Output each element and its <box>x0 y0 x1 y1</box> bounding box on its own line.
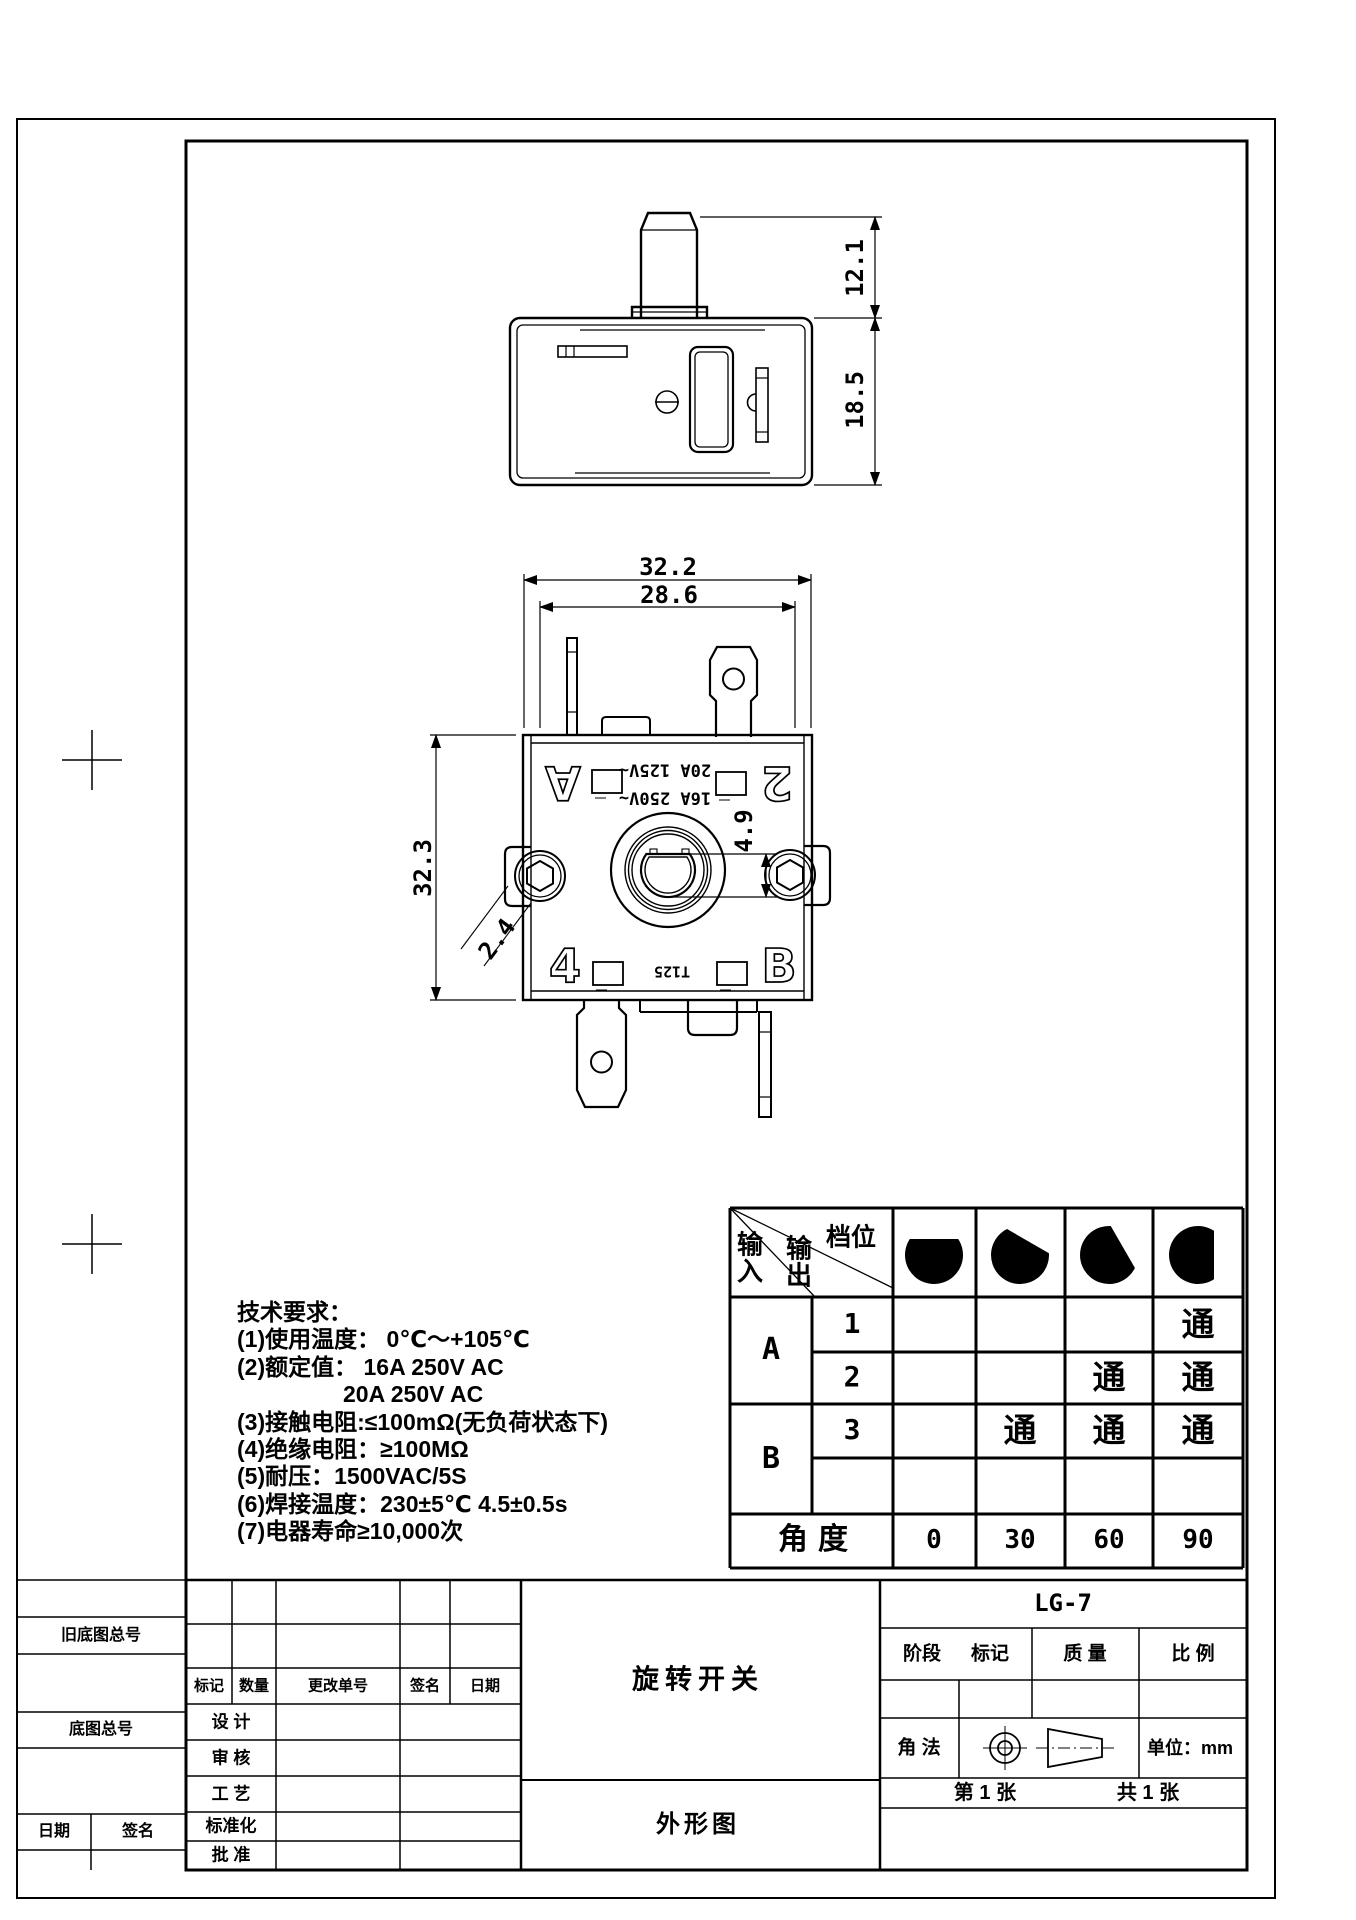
tech-line: (2)额定值： 16A 250V AC <box>237 1354 737 1381</box>
dim-shaft-height: 12.1 <box>843 239 867 297</box>
projection-label: 角 法 <box>897 1739 940 1758</box>
input-group-b: B <box>762 1444 780 1474</box>
tech-line: (1)使用温度： 0℃～+105℃ <box>237 1326 737 1353</box>
state-cell: 通 <box>1182 1414 1215 1447</box>
face-marking-2: 2 <box>761 756 793 810</box>
view-type-label: 外形图 <box>656 1813 740 1837</box>
bottom-pin-terminal <box>759 1012 771 1117</box>
mark-label: 标记 <box>971 1645 1009 1664</box>
dim-body-height: 18.5 <box>843 371 867 429</box>
role-check: 审 核 <box>212 1750 251 1767</box>
state-cell: 通 <box>1182 1308 1215 1341</box>
input-group-a: A <box>762 1335 780 1365</box>
tech-line: (6)焊接温度：230±5℃ 4.5±0.5s <box>237 1491 737 1518</box>
drawing-linework: A 2 4 B <box>0 0 1356 1920</box>
state-cell: 通 <box>1182 1361 1215 1394</box>
front-view <box>505 638 830 1117</box>
projection-symbol <box>983 1726 1114 1770</box>
rev-header-doc: 更改单号 <box>308 1679 368 1694</box>
face-marking-a: A <box>545 756 581 810</box>
state-cell: 通 <box>1093 1414 1126 1447</box>
rev-header-qty: 数量 <box>239 1679 269 1694</box>
face-marking-b: B <box>761 939 796 993</box>
rotary-shaft <box>641 213 697 318</box>
role-standardize: 标准化 <box>206 1818 257 1835</box>
table-corner-input: 输入 <box>735 1232 765 1287</box>
dim-dhole-depth: 4.9 <box>732 809 756 852</box>
role-process: 工 艺 <box>212 1786 251 1803</box>
gear-3: 3 <box>844 1416 861 1444</box>
right-mounting-ear <box>804 846 830 905</box>
top-boss <box>602 717 650 735</box>
angle-value-0: 0 <box>926 1527 942 1553</box>
knob-icon-90deg <box>1169 1226 1214 1284</box>
knob-icon-0deg <box>905 1239 963 1284</box>
angle-row-label: 角度 <box>778 1525 858 1555</box>
dim-face-height: 32.3 <box>411 839 435 897</box>
knob-icon-30deg <box>980 1227 1053 1295</box>
d-shaped-hole <box>641 854 695 897</box>
sheet-borders <box>17 119 1275 1898</box>
unit-label: 单位：mm <box>1147 1739 1233 1757</box>
bottom-spade-terminal <box>577 1000 626 1107</box>
rating-bottom-label: 16A 250V~ <box>619 789 711 806</box>
gear-1: 1 <box>844 1310 861 1338</box>
tech-line: (7)电器寿命≥10,000次 <box>237 1518 737 1545</box>
scale-label: 比 例 <box>1171 1645 1214 1664</box>
role-design: 设 计 <box>212 1714 251 1731</box>
rating-top-label: 20A 125V~ <box>619 761 711 778</box>
gear-2: 2 <box>844 1363 861 1391</box>
date-label-left: 日期 <box>38 1824 70 1840</box>
angle-value-60: 60 <box>1093 1527 1124 1553</box>
stage-label: 阶段 <box>903 1645 941 1664</box>
table-corner-output: 输出 <box>784 1236 814 1291</box>
state-cell: 通 <box>1004 1414 1037 1447</box>
model-code: LG-7 <box>1034 1591 1092 1615</box>
side-view <box>510 213 812 485</box>
type-code-label: T125 <box>654 964 690 979</box>
mass-label: 质 量 <box>1063 1645 1106 1664</box>
old-tracing-no-label: 旧底图总号 <box>61 1628 141 1644</box>
sheet-number: 第 1 张 <box>954 1783 1016 1803</box>
top-spade-terminal <box>710 647 757 737</box>
rev-header-mark: 标记 <box>194 1679 224 1694</box>
technical-requirements: 技术要求： (1)使用温度： 0℃～+105℃ (2)额定值： 16A 250V… <box>237 1299 737 1546</box>
engineering-drawing-sheet: A 2 4 B <box>0 0 1356 1920</box>
angle-value-30: 30 <box>1004 1527 1035 1553</box>
tracing-no-label: 底图总号 <box>69 1722 133 1738</box>
table-corner-gear: 档位 <box>826 1226 876 1251</box>
knob-position-icons <box>905 1222 1214 1295</box>
role-approve: 批 准 <box>212 1847 251 1864</box>
latch-strip <box>756 368 768 442</box>
product-name: 旋转开关 <box>632 1667 764 1694</box>
tech-title: 技术要求： <box>237 1299 737 1326</box>
rev-header-sign: 签名 <box>410 1679 440 1694</box>
tech-line: (3)接触电阻:≤100mΩ(无负荷状态下) <box>237 1409 737 1436</box>
rotary-hub <box>611 813 725 927</box>
title-block-grid <box>17 1580 1247 1870</box>
sheet-total: 共 1 张 <box>1117 1783 1179 1803</box>
centering-marks <box>62 730 122 1274</box>
tech-line: (4)绝缘电阻：≥100MΩ <box>237 1436 737 1463</box>
angle-value-90: 90 <box>1182 1527 1213 1553</box>
dim-inner-width: 28.6 <box>640 583 698 607</box>
knob-icon-60deg <box>1069 1222 1137 1295</box>
bottom-tab <box>688 1000 737 1035</box>
side-slot <box>690 347 733 452</box>
tech-line: 20A 250V AC <box>343 1381 737 1408</box>
rev-header-date: 日期 <box>470 1679 500 1694</box>
face-marking-4: 4 <box>549 939 581 993</box>
state-cell: 通 <box>1093 1361 1126 1394</box>
right-hex-hole <box>765 850 815 900</box>
dim-overall-width: 32.2 <box>639 555 697 579</box>
top-slot <box>558 346 627 357</box>
sign-label-left: 签名 <box>122 1824 154 1840</box>
tech-line: (5)耐压：1500VAC/5S <box>237 1463 737 1490</box>
